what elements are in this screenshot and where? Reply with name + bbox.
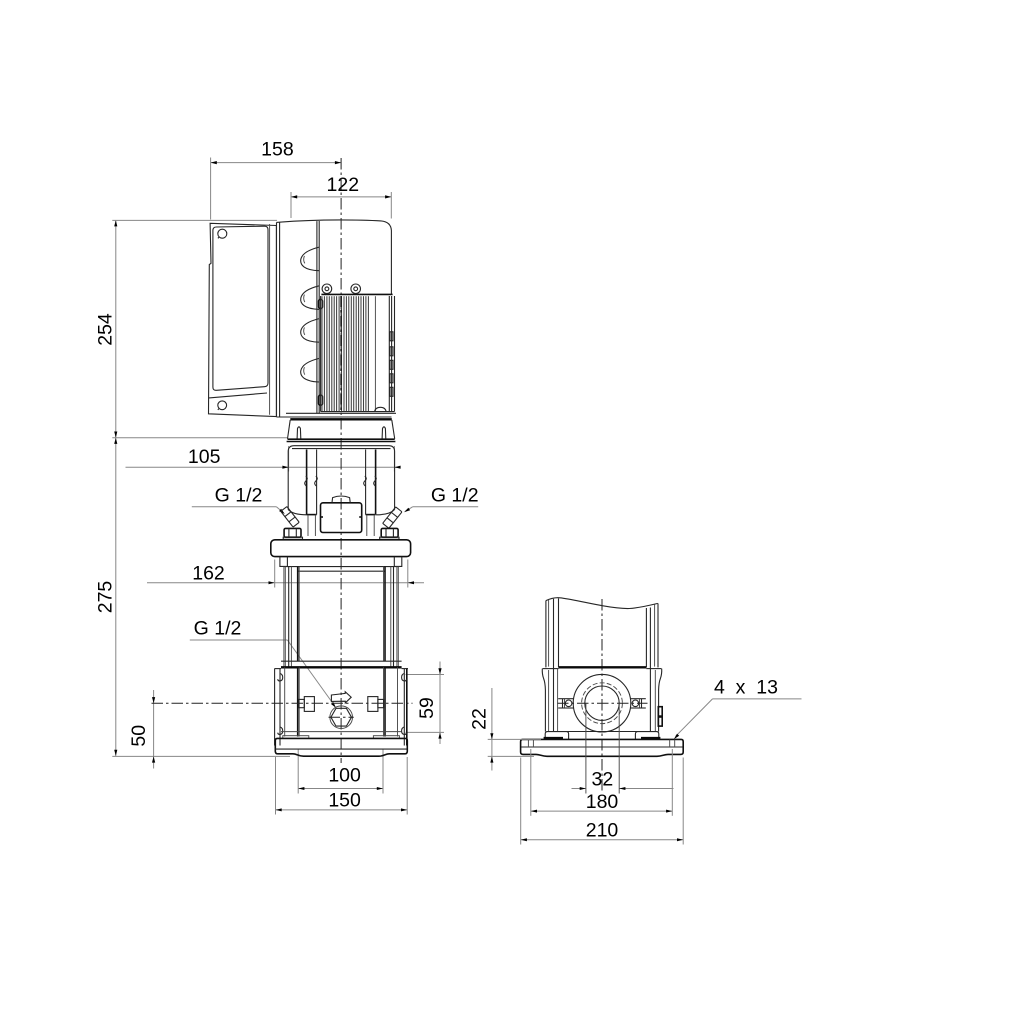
svg-text:22: 22	[469, 708, 491, 730]
svg-text:275: 275	[94, 581, 116, 614]
svg-text:G 1/2: G 1/2	[431, 484, 479, 506]
svg-text:59: 59	[416, 697, 438, 719]
svg-text:122: 122	[327, 174, 360, 196]
svg-text:158: 158	[261, 139, 294, 161]
svg-text:180: 180	[586, 791, 619, 813]
svg-text:G 1/2: G 1/2	[215, 484, 263, 506]
svg-text:G 1/2: G 1/2	[194, 618, 242, 640]
svg-text:150: 150	[328, 790, 361, 812]
svg-text:50: 50	[128, 725, 150, 747]
svg-text:100: 100	[328, 765, 361, 787]
svg-text:254: 254	[94, 313, 116, 346]
svg-text:4 x 13: 4 x 13	[714, 676, 778, 698]
svg-text:105: 105	[188, 446, 221, 468]
svg-text:162: 162	[192, 563, 225, 585]
svg-text:32: 32	[592, 769, 614, 791]
svg-text:210: 210	[586, 820, 619, 842]
